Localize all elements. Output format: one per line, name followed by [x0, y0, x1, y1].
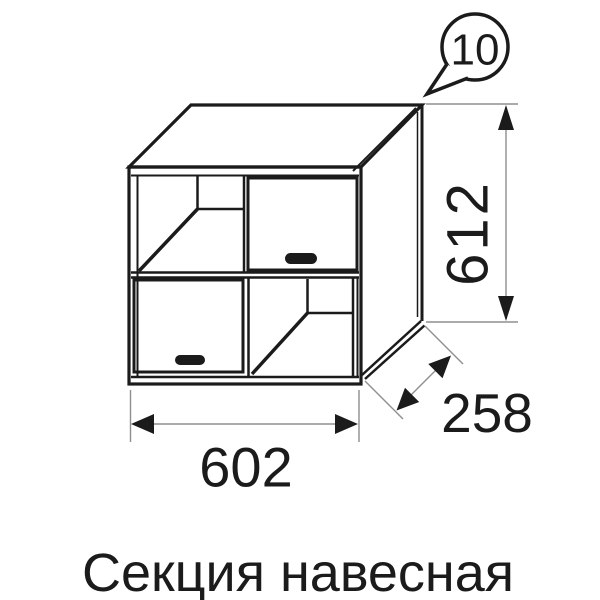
width-dimension: 602	[131, 390, 360, 499]
lower-door	[134, 280, 243, 372]
upper-door-handle	[285, 253, 317, 264]
height-dimension: 612	[426, 104, 518, 322]
callout-number: 10	[451, 26, 500, 75]
width-dimension-label: 602	[199, 436, 292, 499]
lower-opening-interior-corner-line	[252, 313, 308, 374]
arrow-left-icon	[131, 414, 154, 434]
cabinet-body	[129, 105, 425, 384]
arrow-up-icon	[498, 105, 514, 130]
cabinet-top-face	[129, 105, 422, 167]
depth-dimension-label: 258	[441, 382, 533, 444]
arrow-down-left-icon	[397, 388, 420, 411]
arrow-down-icon	[498, 296, 514, 321]
lower-shelf-opening	[249, 278, 358, 377]
lower-door-handle	[175, 355, 205, 365]
caption: Секция навесная	[82, 543, 514, 600]
upper-shelf-opening	[139, 175, 244, 272]
upper-opening-interior-corner-line	[139, 209, 198, 271]
cabinet-side-panel	[362, 105, 425, 379]
height-dimension-label: 612	[436, 180, 501, 286]
arrow-right-icon	[335, 414, 358, 434]
top-face-edge-inner-line	[353, 108, 416, 171]
depth-dimension: 258	[365, 326, 533, 444]
cabinet-technical-drawing: 612 258 602 10 Секция навесная	[0, 0, 600, 600]
callout-bubble: 10	[427, 14, 508, 94]
upper-door	[248, 178, 357, 270]
drawing-canvas: 612 258 602 10 Секция навесная	[0, 0, 600, 600]
